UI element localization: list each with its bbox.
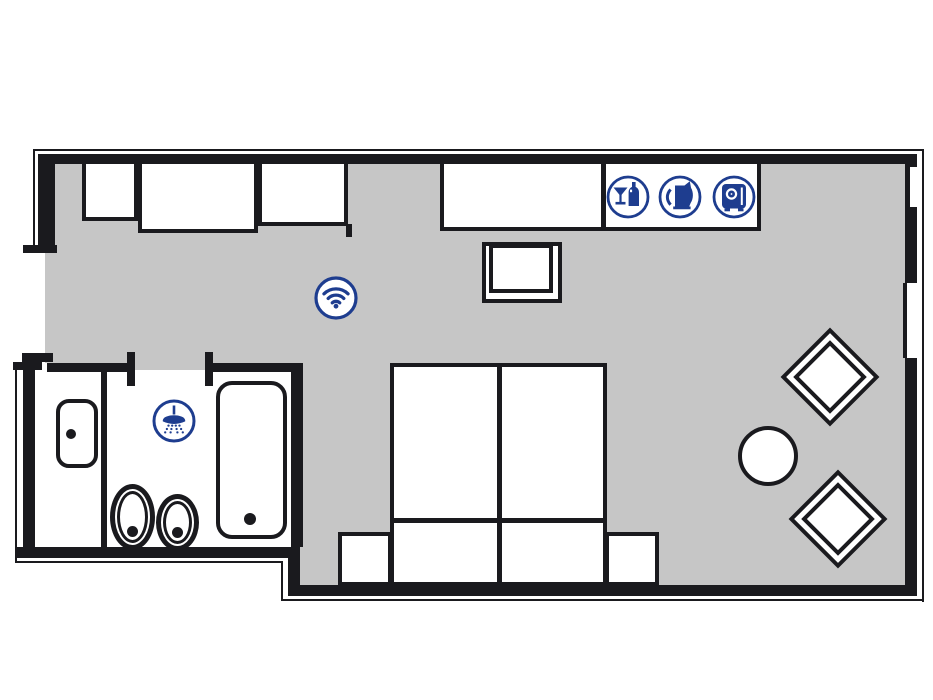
wall-top	[38, 154, 917, 164]
contour-left-upper	[33, 149, 35, 245]
wall-bottom	[288, 585, 917, 596]
nightstand-right	[605, 532, 659, 586]
contour-bottom	[283, 599, 924, 601]
round-table	[738, 426, 798, 486]
cabinet-end-wall-stub	[346, 224, 352, 237]
bidet	[156, 494, 199, 551]
shower-icon	[150, 397, 198, 445]
wall-right-thin-section	[905, 167, 910, 207]
nightstand-left	[338, 532, 392, 586]
wall-left-door-jamb	[23, 245, 57, 253]
bathroom-door-opening	[135, 363, 205, 370]
toilet-drain	[127, 526, 138, 537]
entry-door-jamb-top	[22, 353, 53, 362]
bidet-drain	[172, 527, 183, 538]
wifi-icon	[312, 274, 360, 322]
desk-chair	[482, 242, 562, 303]
kettle-icon	[656, 173, 704, 221]
floorplan-canvas	[0, 0, 933, 700]
bathtub-drain	[244, 513, 256, 525]
minibar-icon	[604, 173, 652, 221]
entry-door-jamb-side	[13, 362, 42, 370]
wall-washbasin-divider	[101, 372, 107, 547]
contour-top	[33, 149, 924, 151]
wall-right-lower	[905, 358, 917, 596]
washbasin	[56, 399, 98, 468]
closet	[138, 159, 258, 233]
wall-bathroom-top-left	[47, 363, 135, 372]
contour-bathroom-left	[15, 362, 17, 563]
desk-chair-backrest	[489, 244, 553, 293]
wall-bathroom-bottom	[15, 547, 300, 558]
bathtub	[216, 381, 287, 539]
washbasin-drain	[66, 429, 76, 439]
bed-pillow-divider	[390, 518, 607, 523]
contour-step	[281, 563, 283, 601]
bathroom-door-jamb-left	[127, 352, 135, 386]
wall-left	[38, 154, 55, 253]
contour-right	[922, 149, 924, 602]
wall-bathroom-right	[291, 372, 303, 547]
wardrobe	[82, 159, 138, 221]
cabinet	[258, 159, 348, 226]
bed-center-divider	[497, 363, 502, 586]
safe-icon	[710, 173, 758, 221]
contour-bathroom-bottom	[15, 561, 283, 563]
wall-right-mid	[905, 207, 917, 283]
window-inner-line	[903, 283, 907, 358]
wall-bathroom-left	[23, 362, 35, 558]
bathroom-door-jamb-right	[205, 352, 213, 386]
toilet	[110, 484, 155, 550]
wall-bathroom-top-right	[213, 363, 303, 372]
double-bed	[390, 363, 607, 586]
wall-right-upper	[905, 154, 917, 167]
